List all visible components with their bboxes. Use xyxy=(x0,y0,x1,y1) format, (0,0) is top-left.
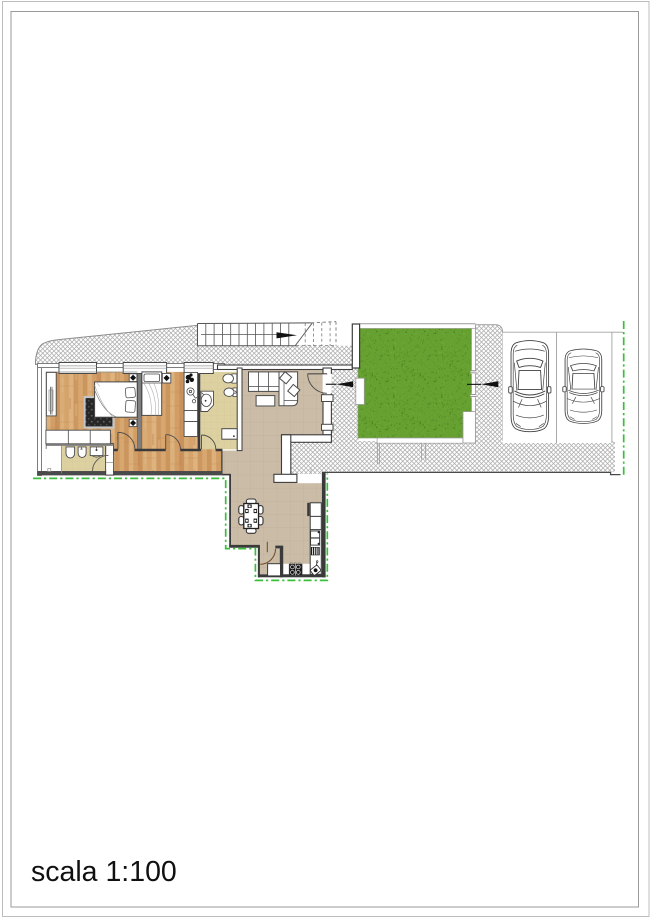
svg-text:scala 1:100: scala 1:100 xyxy=(31,856,177,888)
